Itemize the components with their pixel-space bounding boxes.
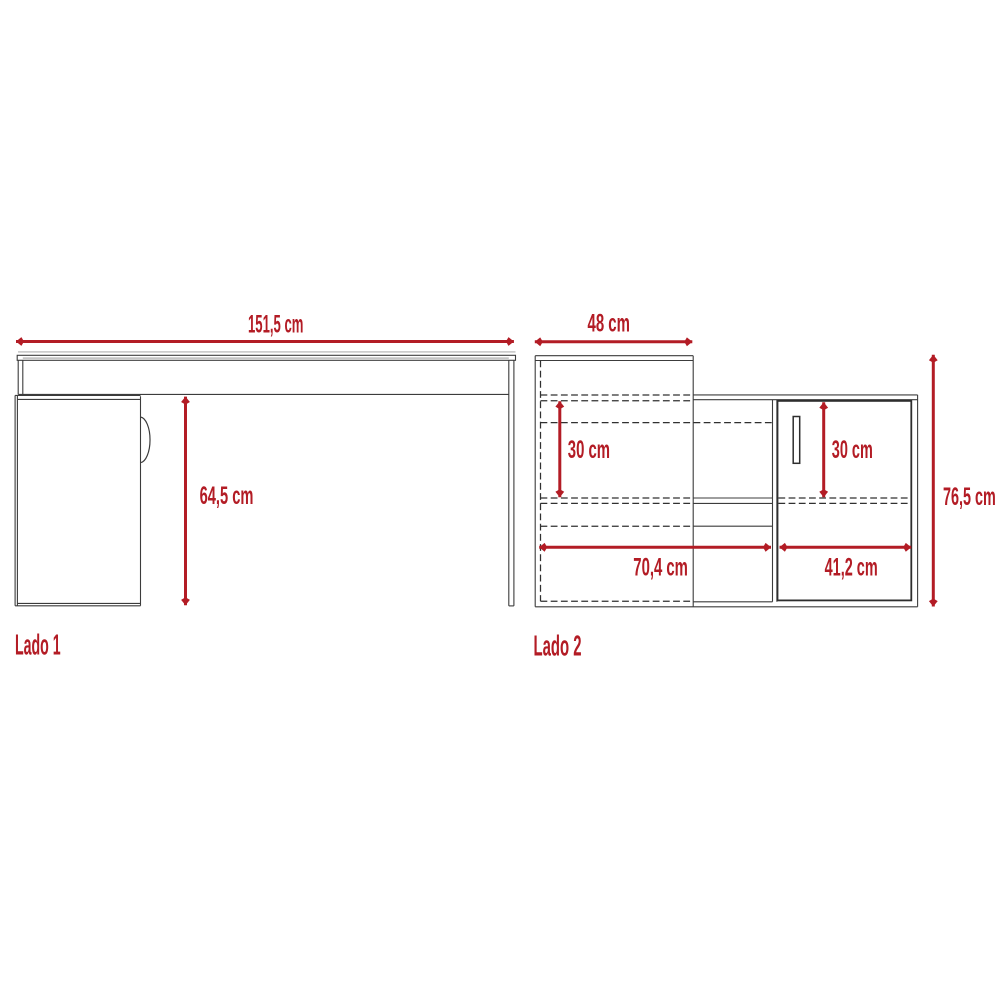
svg-text:Lado 2: Lado 2 (534, 631, 582, 663)
svg-text:Lado 1: Lado 1 (15, 629, 61, 661)
svg-text:151,5 cm: 151,5 cm (248, 310, 303, 338)
svg-text:64,5 cm: 64,5 cm (200, 482, 254, 510)
svg-text:30 cm: 30 cm (832, 436, 873, 464)
svg-text:41,2 cm: 41,2 cm (825, 554, 878, 582)
svg-text:70,4 cm: 70,4 cm (633, 554, 688, 582)
svg-text:30 cm: 30 cm (568, 436, 610, 464)
svg-text:48 cm: 48 cm (588, 310, 630, 338)
svg-text:76,5 cm: 76,5 cm (943, 483, 996, 511)
